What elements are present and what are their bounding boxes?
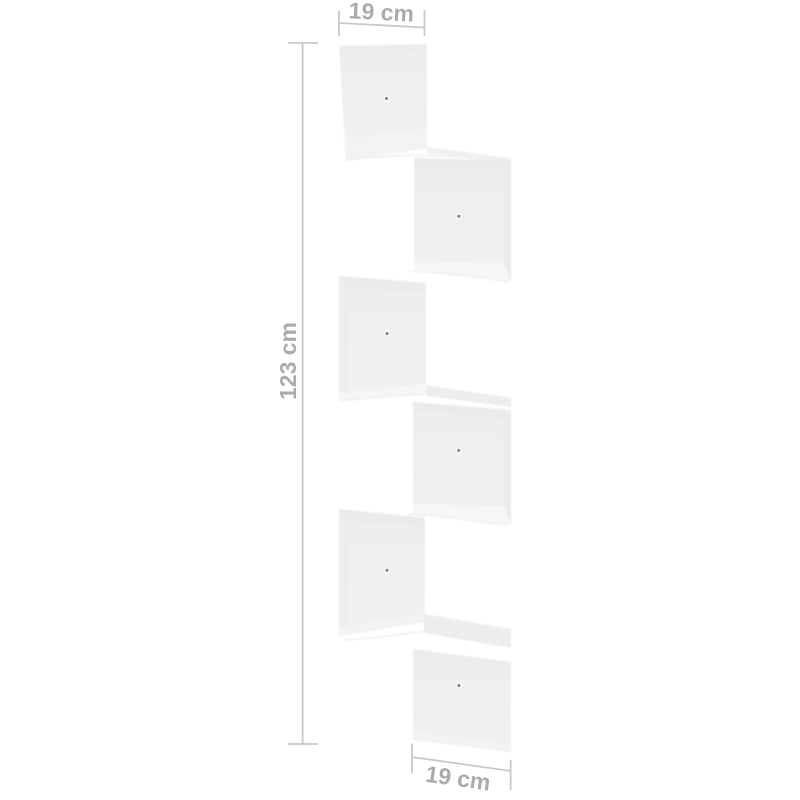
svg-text:19 cm: 19 cm	[348, 0, 414, 27]
svg-text:123 cm: 123 cm	[275, 322, 301, 400]
